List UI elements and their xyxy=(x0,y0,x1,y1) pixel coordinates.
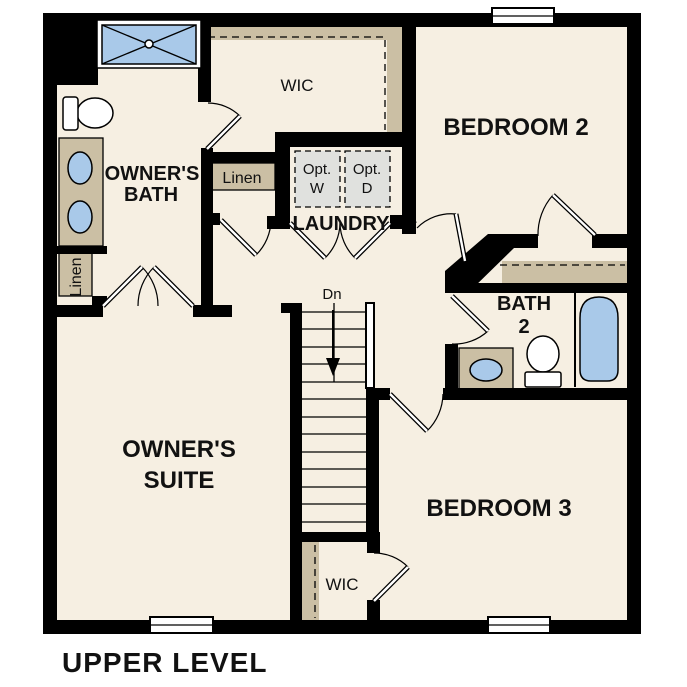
bath2-label: BATH xyxy=(497,293,551,315)
linen-owners-label: Linen xyxy=(68,257,85,296)
floor-plan-drawing: OWNER'S BATH WIC Linen Opt. W Opt. D LAU… xyxy=(0,0,687,687)
wic-lower-shelf xyxy=(302,542,319,620)
toilet-tank xyxy=(525,372,561,387)
optional-dryer-label: Opt. xyxy=(353,161,381,178)
shower-drain-icon xyxy=(145,40,153,48)
wall-segment xyxy=(275,132,416,147)
wall-segment xyxy=(390,215,402,229)
optional-washer-label: W xyxy=(310,180,325,197)
wic-upper-label: WIC xyxy=(280,76,313,95)
page-title: UPPER LEVEL xyxy=(62,647,267,678)
stair-railing xyxy=(366,303,374,388)
bedroom2-label: BEDROOM 2 xyxy=(443,114,588,141)
wall-segment xyxy=(367,600,380,620)
optional-dryer-label: D xyxy=(362,180,373,197)
owners-bath-label: BATH xyxy=(124,184,178,206)
wic-lower-label: WIC xyxy=(325,575,358,594)
wall-segment xyxy=(514,234,538,248)
bedroom3-label: BEDROOM 3 xyxy=(426,495,571,522)
bedroom2-closet-shelf xyxy=(502,261,627,283)
wall-segment xyxy=(290,532,380,542)
wall-segment xyxy=(57,246,107,254)
optional-dryer-box xyxy=(345,151,390,207)
wall-segment xyxy=(57,305,103,317)
owners-suite-label: SUITE xyxy=(144,467,215,494)
wall-segment xyxy=(43,620,641,634)
bathtub-icon xyxy=(580,297,618,381)
toilet-icon xyxy=(527,336,559,372)
wall-segment xyxy=(43,13,57,634)
wall-segment xyxy=(627,13,641,634)
sink-icon xyxy=(68,152,92,184)
owners-bath-label: OWNER'S xyxy=(105,163,200,185)
sink-icon xyxy=(470,359,502,381)
toilet-icon xyxy=(77,98,113,128)
wall-segment xyxy=(201,213,220,225)
linen-hall-label: Linen xyxy=(222,170,261,187)
optional-washer-label: Opt. xyxy=(303,161,331,178)
owners-suite-label: OWNER'S xyxy=(122,436,236,463)
wall-segment xyxy=(458,283,627,293)
wall-segment xyxy=(367,542,380,553)
wall-segment xyxy=(592,234,627,248)
wall-segment xyxy=(193,305,232,317)
wall-segment xyxy=(366,388,379,532)
laundry-label: LAUNDRY xyxy=(292,213,390,235)
wall-segment xyxy=(290,303,302,620)
sink-icon xyxy=(68,201,92,233)
optional-washer-box xyxy=(295,151,340,207)
wall-segment xyxy=(443,388,627,400)
toilet-tank xyxy=(63,97,78,130)
wall-segment xyxy=(203,152,275,163)
wall-segment xyxy=(201,148,213,315)
wall-segment xyxy=(43,13,98,85)
bath2-label: 2 xyxy=(518,316,529,338)
wall-segment xyxy=(275,147,290,217)
wall-segment xyxy=(402,13,416,234)
floor-plan-page: OWNER'S BATH WIC Linen Opt. W Opt. D LAU… xyxy=(0,0,687,687)
wall-segment xyxy=(281,303,302,313)
wall-segment xyxy=(445,344,458,388)
stairs-down-label: Dn xyxy=(322,286,341,303)
